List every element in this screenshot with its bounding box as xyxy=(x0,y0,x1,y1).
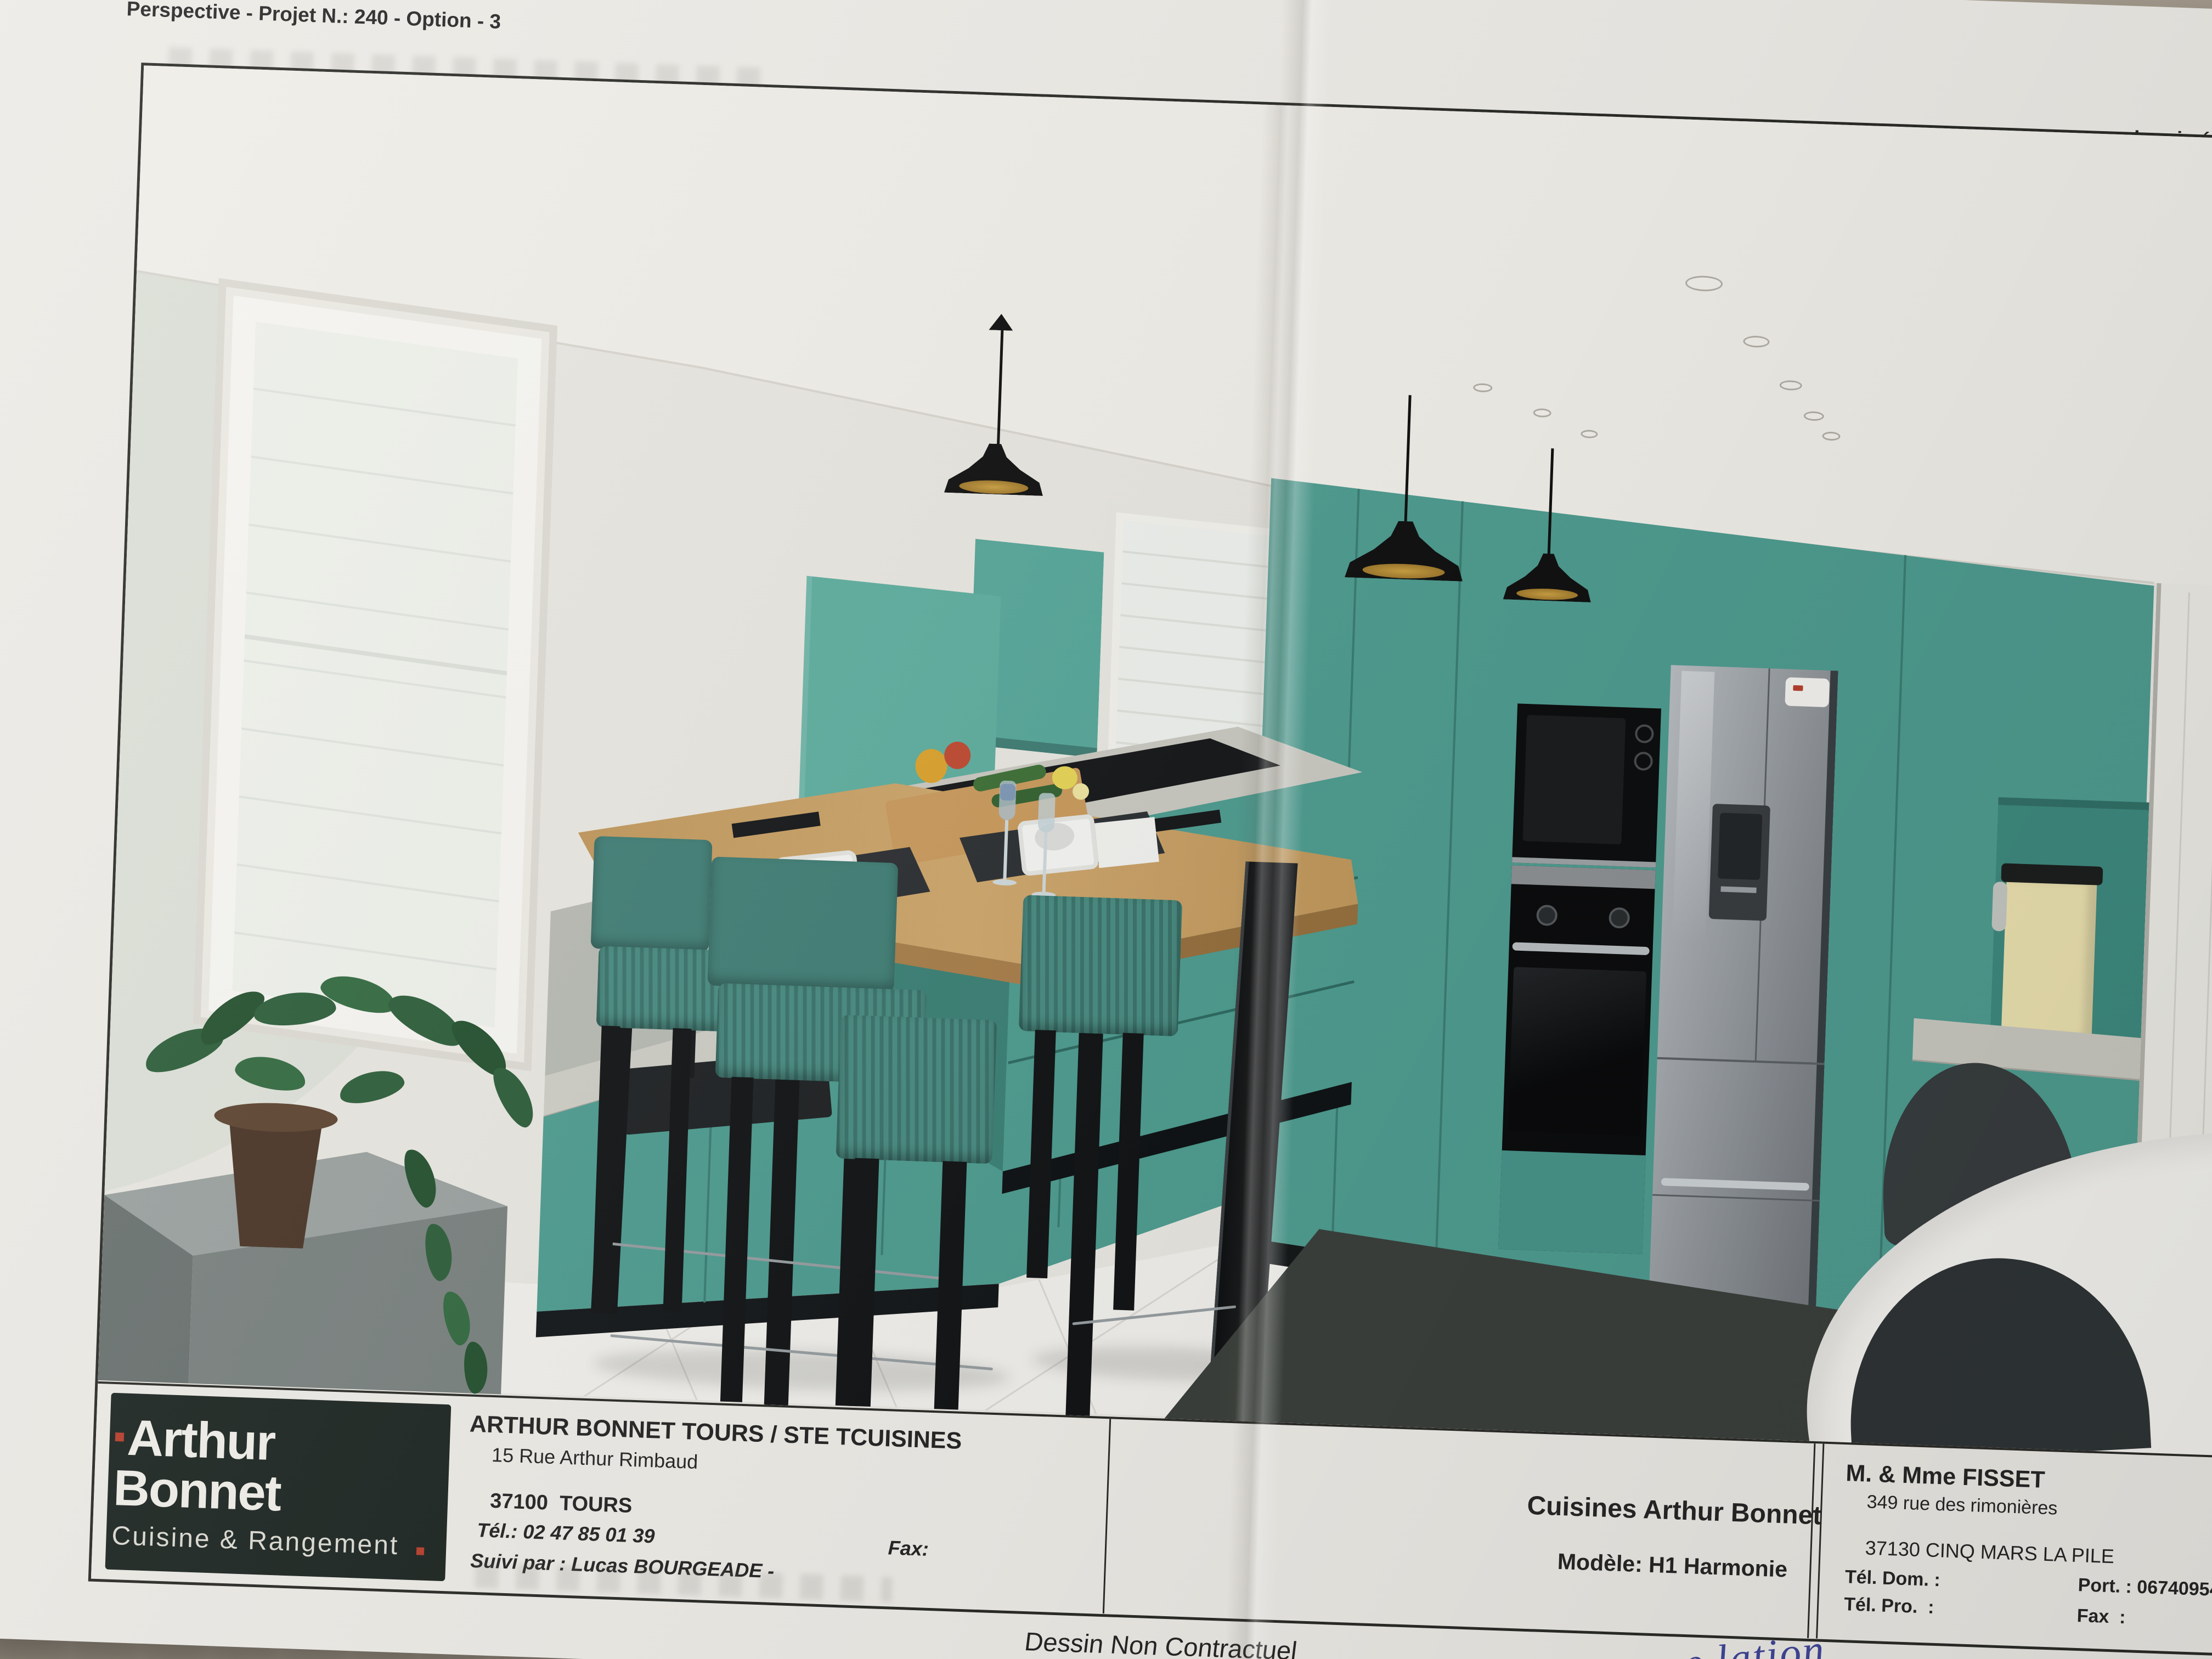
paper-sheet: Perspective - Projet N.: 240 - Option - … xyxy=(0,0,2212,1659)
divider xyxy=(1807,1443,1815,1638)
brand-name: Arthur Bonnet xyxy=(112,1409,281,1521)
customer-tel-pro: Tél. Pro. : xyxy=(1844,1594,1935,1618)
page-title: Perspective - Projet N.: 240 - Option - … xyxy=(126,0,501,33)
brand-logo: Arthur Bonnet Cuisine & Rangement xyxy=(105,1393,452,1581)
dealer-street: 15 Rue Arthur Rimbaud xyxy=(491,1443,698,1474)
photo-of-printed-plan: Perspective - Projet N.: 240 - Option - … xyxy=(0,0,2212,1659)
divider xyxy=(1816,1444,1824,1639)
logo-red-dot xyxy=(115,1432,125,1442)
brand-tagline: Cuisine & Rangement xyxy=(111,1521,399,1560)
divider xyxy=(1103,1419,1111,1613)
customer-tel-dom: Tél. Dom. : xyxy=(1844,1566,1940,1591)
dealer-city: 37100 TOURS xyxy=(490,1489,633,1518)
dealer-phone: Tél.: 02 47 85 01 39 xyxy=(477,1519,656,1548)
logo-red-dot xyxy=(416,1547,424,1555)
drawing-frame: Arthur Bonnet Cuisine & Rangement ARTHUR… xyxy=(88,63,2212,1659)
customer-fax: Fax : xyxy=(2076,1605,2126,1628)
printed-page: Perspective - Projet N.: 240 - Option - … xyxy=(0,0,2212,1659)
dealer-fax: Fax: xyxy=(888,1536,929,1561)
kitchen-render xyxy=(98,65,2212,1460)
customer-name: M. & Mme FISSET xyxy=(1846,1460,2046,1494)
customer-port: Port. : 0674095483 xyxy=(2078,1575,2212,1601)
disclaimer: Dessin Non Contractuel xyxy=(1023,1626,1299,1659)
